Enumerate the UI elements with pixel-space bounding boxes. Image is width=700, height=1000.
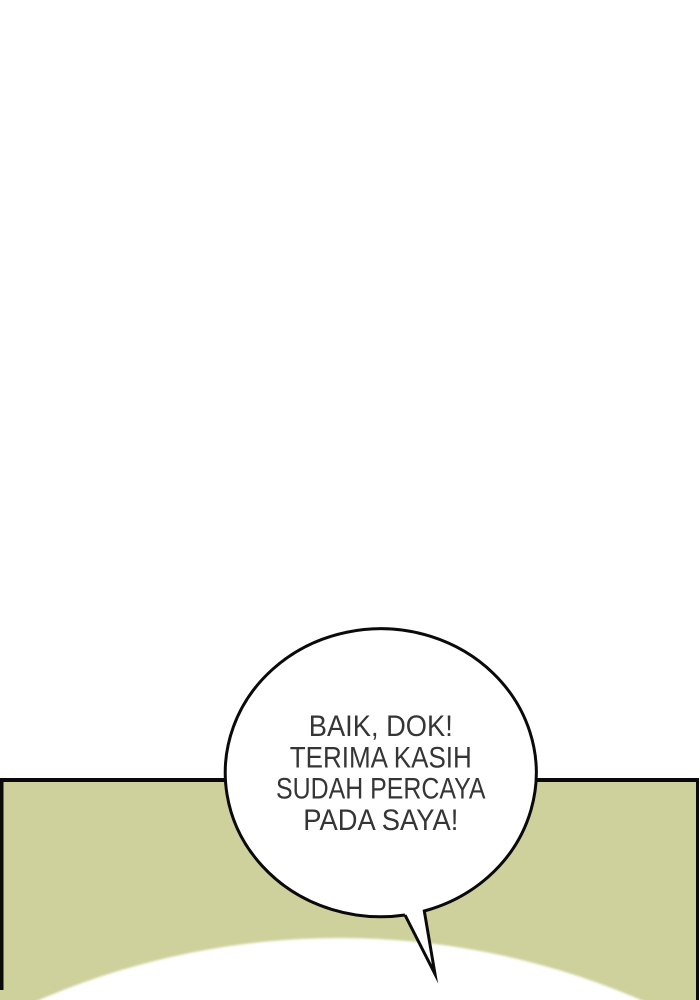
svg-text:BAIK, DOK!: BAIK, DOK! <box>309 710 453 743</box>
svg-text:SUDAH PERCAYA: SUDAH PERCAYA <box>276 773 486 806</box>
svg-text:PADA SAYA!: PADA SAYA! <box>303 804 458 837</box>
svg-text:TERIMA KASIH: TERIMA KASIH <box>290 742 472 775</box>
